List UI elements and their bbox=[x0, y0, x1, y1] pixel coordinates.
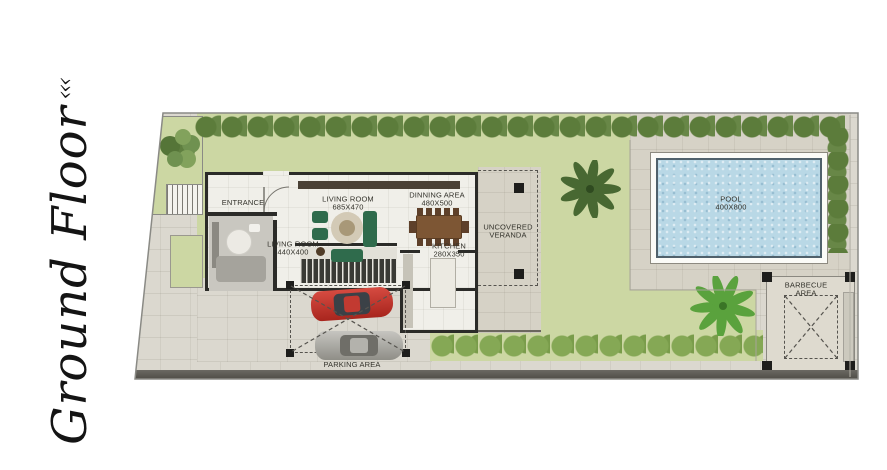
lounge-table bbox=[249, 224, 260, 232]
wall-kitchen-left bbox=[400, 250, 420, 253]
sofa-horizontal bbox=[331, 249, 363, 262]
kitchen-island bbox=[430, 258, 456, 308]
car-red-roof bbox=[343, 296, 360, 313]
interior-stairs bbox=[300, 259, 397, 283]
site-plan: ENTRANCE LIVING ROOM685X470 LIVING ROOM4… bbox=[0, 0, 887, 470]
side-grass-strip bbox=[170, 235, 203, 288]
lounge-sofa bbox=[216, 256, 266, 282]
parking-column-br bbox=[402, 349, 410, 357]
living-room-main-label: LIVING ROOM685X470 bbox=[322, 196, 374, 213]
armchair-2 bbox=[312, 228, 328, 240]
kitchen-dims: 280X350 bbox=[432, 251, 466, 259]
ground-floor-title-text: Ground Floor bbox=[42, 106, 98, 445]
kitchen-label: KITCHEN280X350 bbox=[432, 243, 466, 260]
floor-plan-scene: Ground Floor‹‹‹ bbox=[0, 0, 887, 470]
barbecue-column-tr bbox=[845, 272, 855, 282]
barbecue-column-tl bbox=[762, 272, 772, 282]
living-main-dims: 685X470 bbox=[322, 204, 374, 212]
parking-label-text: PARKING AREA bbox=[323, 361, 380, 369]
veranda-column-bottom bbox=[514, 269, 524, 279]
title-flourish-icon: ‹‹‹ bbox=[53, 79, 78, 99]
veranda-line2: VERANDA bbox=[483, 232, 532, 240]
palm-tree-dark bbox=[558, 160, 622, 218]
hedge-top bbox=[195, 114, 845, 140]
garden-tree bbox=[153, 122, 209, 178]
dining-dims: 480X500 bbox=[409, 200, 465, 208]
veranda-label: UNCOVEREDVERANDA bbox=[483, 224, 532, 241]
ground-floor-title: Ground Floor‹‹‹ bbox=[42, 32, 110, 470]
dining-chairs-top bbox=[417, 208, 462, 215]
coffee-table bbox=[339, 220, 355, 236]
car-red bbox=[310, 286, 394, 322]
entrance-label: ENTRANCE bbox=[222, 199, 264, 207]
barbecue-boundary bbox=[784, 295, 838, 359]
parking-label: PARKING AREA bbox=[323, 361, 380, 369]
dining-chair-left bbox=[409, 221, 416, 233]
living-small-dims: 440X400 bbox=[267, 249, 319, 257]
entrance-label-text: ENTRANCE bbox=[222, 199, 264, 207]
parking-column-tl bbox=[286, 281, 294, 289]
parking-column-tr bbox=[402, 281, 410, 289]
palm-tree-light bbox=[690, 276, 756, 336]
barbecue-label: BARBECUEAREA bbox=[785, 282, 827, 299]
hedge-right bbox=[825, 128, 851, 253]
barbecue-counter bbox=[843, 292, 854, 362]
entrance-door-gap bbox=[263, 171, 289, 176]
lounge-rug bbox=[226, 229, 252, 255]
pool-dims: 400X800 bbox=[715, 204, 746, 212]
car-gray bbox=[315, 331, 403, 360]
bottom-boundary-wall bbox=[130, 370, 862, 380]
dining-chair-right bbox=[462, 221, 469, 233]
pool-label: POOL400X800 bbox=[715, 196, 746, 213]
living-room-small-label: LIVING ROOM440X400 bbox=[267, 241, 319, 258]
exterior-stairs bbox=[166, 184, 203, 215]
veranda-column-top bbox=[514, 183, 524, 193]
barbecue-line2: AREA bbox=[785, 290, 827, 298]
car-gray-roof bbox=[350, 338, 368, 353]
dining-table bbox=[416, 215, 462, 239]
sofa-vertical bbox=[363, 211, 377, 247]
parking-column-bl bbox=[286, 349, 294, 357]
sideboard-feature bbox=[298, 181, 460, 189]
armchair-1 bbox=[312, 211, 328, 223]
dining-area-label: DINNING AREA480X500 bbox=[409, 192, 465, 209]
